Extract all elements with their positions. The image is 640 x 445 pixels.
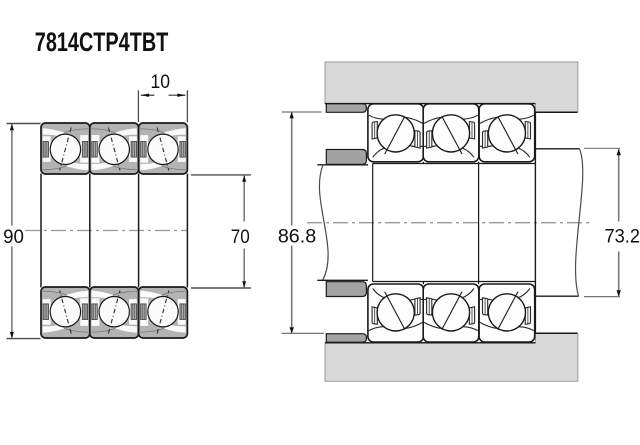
- svg-text:7814CTP4TBT: 7814CTP4TBT: [35, 27, 169, 57]
- svg-text:73.2: 73.2: [605, 225, 640, 247]
- svg-text:70: 70: [231, 226, 250, 248]
- svg-text:90: 90: [3, 226, 24, 248]
- svg-text:10: 10: [151, 71, 171, 93]
- svg-text:86.8: 86.8: [278, 225, 316, 247]
